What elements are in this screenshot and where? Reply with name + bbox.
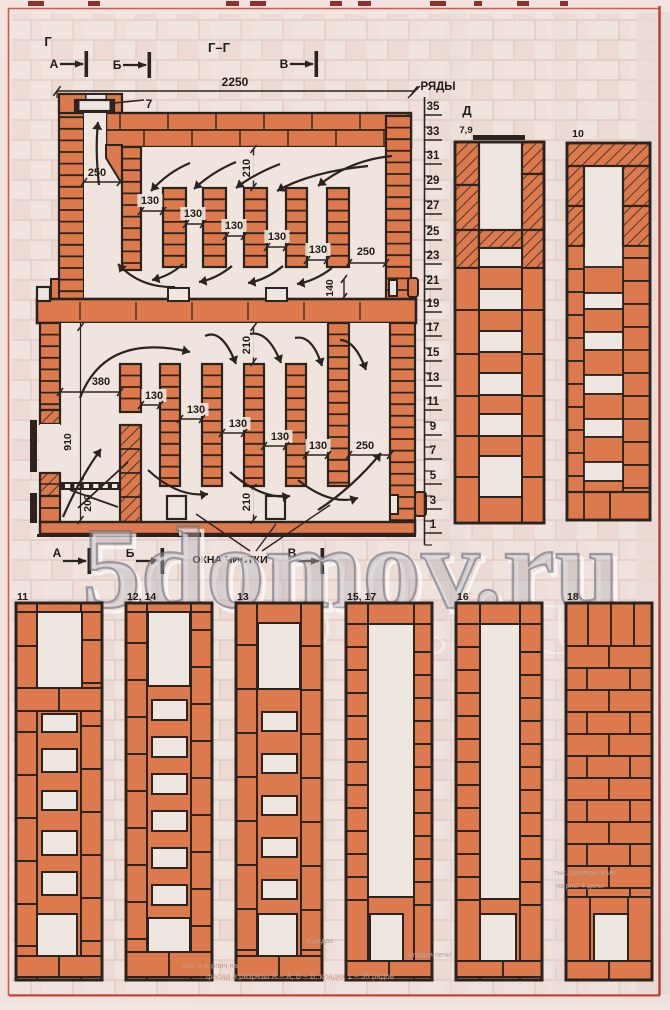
svg-text:19: 19 [427,298,440,310]
svg-text:13: 13 [427,372,440,384]
svg-text:А: А [50,57,59,71]
svg-text:15: 15 [427,347,440,359]
svg-text:130: 130 [229,418,247,430]
svg-text:7: 7 [430,445,436,457]
svg-text:140: 140 [324,279,336,297]
svg-text:27: 27 [427,200,440,212]
svg-text:18: 18 [567,591,579,603]
svg-text:130: 130 [225,220,243,232]
svg-text:380: 380 [92,376,110,388]
svg-text:фасад и разрезы А – А, Б – Б,: фасад и разрезы А – А, Б – Б, кладка 1 –… [206,972,394,981]
svg-text:210: 210 [241,336,253,354]
svg-text:130: 130 [184,208,202,220]
svg-text:29: 29 [427,175,440,187]
svg-text:33: 33 [427,126,440,138]
svg-text:11: 11 [17,591,28,603]
svg-text:23: 23 [427,250,440,262]
svg-text:250: 250 [357,246,375,258]
svg-text:12, 14: 12, 14 [127,591,156,603]
svg-text:2250: 2250 [222,75,249,89]
svg-text:фиг и кирпич на: фиг и кирпич на [182,961,238,970]
svg-text:910: 910 [62,433,74,451]
svg-text:тыс. размеры в мм: тыс. размеры в мм [554,870,616,877]
svg-text:Г–Г: Г–Г [208,40,231,55]
svg-text:130: 130 [271,431,289,443]
svg-text:16: 16 [457,591,469,603]
svg-text:130: 130 [145,390,163,402]
svg-text:А: А [53,546,62,560]
svg-text:кладки печи: кладки печи [409,950,451,959]
svg-text:130: 130 [309,244,327,256]
svg-text:7: 7 [146,97,153,111]
svg-text:10: 10 [572,128,584,140]
svg-text:210: 210 [241,159,253,177]
svg-text:7,9: 7,9 [459,125,472,136]
svg-text:17: 17 [427,322,440,334]
svg-text:130: 130 [141,195,159,207]
svg-text:РЯДЫ: РЯДЫ [420,81,455,93]
svg-text:250: 250 [356,440,374,452]
svg-text:31: 31 [427,150,440,162]
svg-text:В: В [280,57,289,71]
svg-text:21: 21 [427,275,440,287]
svg-text:5: 5 [430,470,437,482]
svg-text:9: 9 [430,421,436,433]
svg-text:на рис. 4 даны: на рис. 4 даны [556,883,604,890]
svg-text:35: 35 [427,101,440,113]
svg-text:Д: Д [462,103,472,118]
svg-text:15, 17: 15, 17 [347,591,376,603]
svg-text:25: 25 [427,226,440,238]
svg-text:13: 13 [237,591,249,603]
svg-text:11: 11 [427,396,440,408]
svg-text:Б: Б [113,58,122,72]
svg-text:130: 130 [309,440,327,452]
svg-text:130: 130 [268,231,286,243]
svg-text:Г: Г [44,34,52,49]
svg-text:в рядах: в рядах [307,936,334,945]
svg-text:130: 130 [187,404,205,416]
